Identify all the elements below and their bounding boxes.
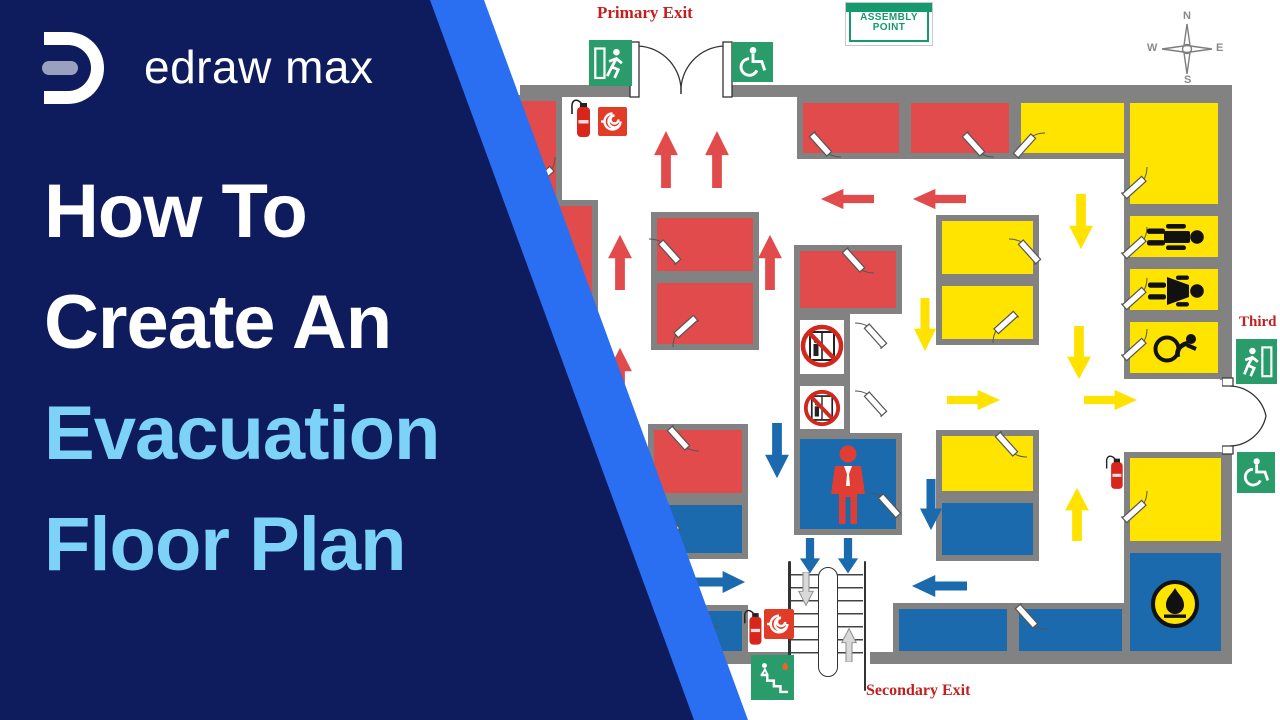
room-yellow [936, 280, 1039, 345]
compass-west: W [1147, 42, 1157, 54]
door [1018, 602, 1048, 632]
route-arrow-red-left [820, 188, 874, 210]
title-line-4: Floor Plan [44, 489, 439, 600]
womens-restroom-icon [1146, 274, 1206, 308]
exit-running-man-icon [1236, 339, 1277, 384]
primary-exit-door [628, 38, 734, 98]
door [648, 236, 678, 266]
fire-warden-icon [825, 444, 871, 528]
mens-restroom-icon [1146, 222, 1206, 252]
door [990, 314, 1020, 344]
room-blue [936, 497, 1039, 561]
video-thumbnail: Primary Exit Secondary Exit Third ASSEMB… [0, 0, 1280, 720]
route-arrow-red-up [757, 234, 783, 290]
route-arrow-blue-down [919, 479, 943, 531]
door [812, 130, 842, 160]
route-arrow-yellow-right [947, 389, 1001, 411]
route-arrow-blue-down [764, 423, 790, 479]
fire-hose-reel-icon [764, 609, 794, 639]
title-line-2: Create An [44, 267, 439, 378]
door [845, 246, 875, 276]
title-line-3: Evacuation [44, 378, 439, 489]
primary-exit-label: Primary Exit [597, 3, 693, 23]
door [868, 490, 898, 520]
route-arrow-yellow-up [1064, 487, 1090, 541]
door [1120, 490, 1150, 520]
accessible-restroom-icon [1150, 330, 1202, 366]
title-line-1: How To [44, 156, 439, 267]
door [854, 320, 884, 350]
stairs-up-arrow [841, 628, 857, 662]
stair-stringer [818, 567, 838, 677]
assembly-point-text: ASSEMBLY POINT [846, 13, 932, 33]
fire-extinguisher-icon [569, 96, 596, 140]
stair-rail [864, 561, 867, 691]
third-exit-label: Third [1239, 314, 1277, 331]
assembly-point-sign: ASSEMBLY POINT [845, 2, 933, 46]
route-arrow-blue-down [837, 538, 859, 574]
route-arrow-red-up [607, 234, 633, 290]
assembly-point-bar [846, 3, 932, 12]
room-blue [893, 603, 1013, 657]
stairs-exit-icon [751, 655, 794, 700]
door [670, 424, 700, 454]
fire-hose-reel-icon [598, 107, 627, 136]
flammable-icon [1149, 578, 1201, 630]
door [1016, 130, 1046, 160]
room-red [905, 97, 1015, 159]
door [1120, 166, 1150, 196]
secondary-exit-label: Secondary Exit [866, 682, 970, 700]
exit-running-man-icon [589, 40, 632, 86]
route-arrow-yellow-right [1084, 389, 1138, 411]
route-arrow-yellow-down [1066, 326, 1092, 380]
fire-extinguisher-icon [1104, 452, 1128, 492]
video-title: How To Create An Evacuation Floor Plan [44, 156, 439, 600]
edraw-logo-pill-icon [42, 61, 78, 75]
door [965, 130, 995, 160]
wall-top-right [730, 85, 1232, 97]
room-red [651, 277, 759, 350]
edraw-logo [44, 32, 134, 104]
compass-south: S [1184, 74, 1191, 86]
door [670, 318, 700, 348]
route-arrow-blue-down [799, 538, 821, 574]
route-arrow-yellow-down [1068, 194, 1094, 250]
third-exit-door [1222, 376, 1272, 456]
no-elevator-icon [800, 319, 844, 373]
wheelchair-accessible-icon [1237, 452, 1275, 493]
no-elevator-icon [800, 385, 844, 431]
wheelchair-accessible-icon [732, 42, 773, 82]
door [854, 388, 884, 418]
route-arrow-red-up [653, 130, 679, 188]
compass-east: E [1216, 42, 1223, 54]
door [1008, 236, 1038, 266]
compass-rose-icon: N S W E [1150, 14, 1224, 84]
door [1120, 328, 1150, 358]
stairs-down-arrow [798, 572, 814, 606]
route-arrow-red-up [704, 130, 730, 188]
compass-north: N [1183, 10, 1191, 22]
door [998, 430, 1028, 460]
route-arrow-yellow-down [913, 298, 937, 352]
route-arrow-red-left [912, 188, 966, 210]
brand-wordmark: edraw max [144, 40, 373, 94]
route-arrow-blue-left [911, 574, 967, 598]
